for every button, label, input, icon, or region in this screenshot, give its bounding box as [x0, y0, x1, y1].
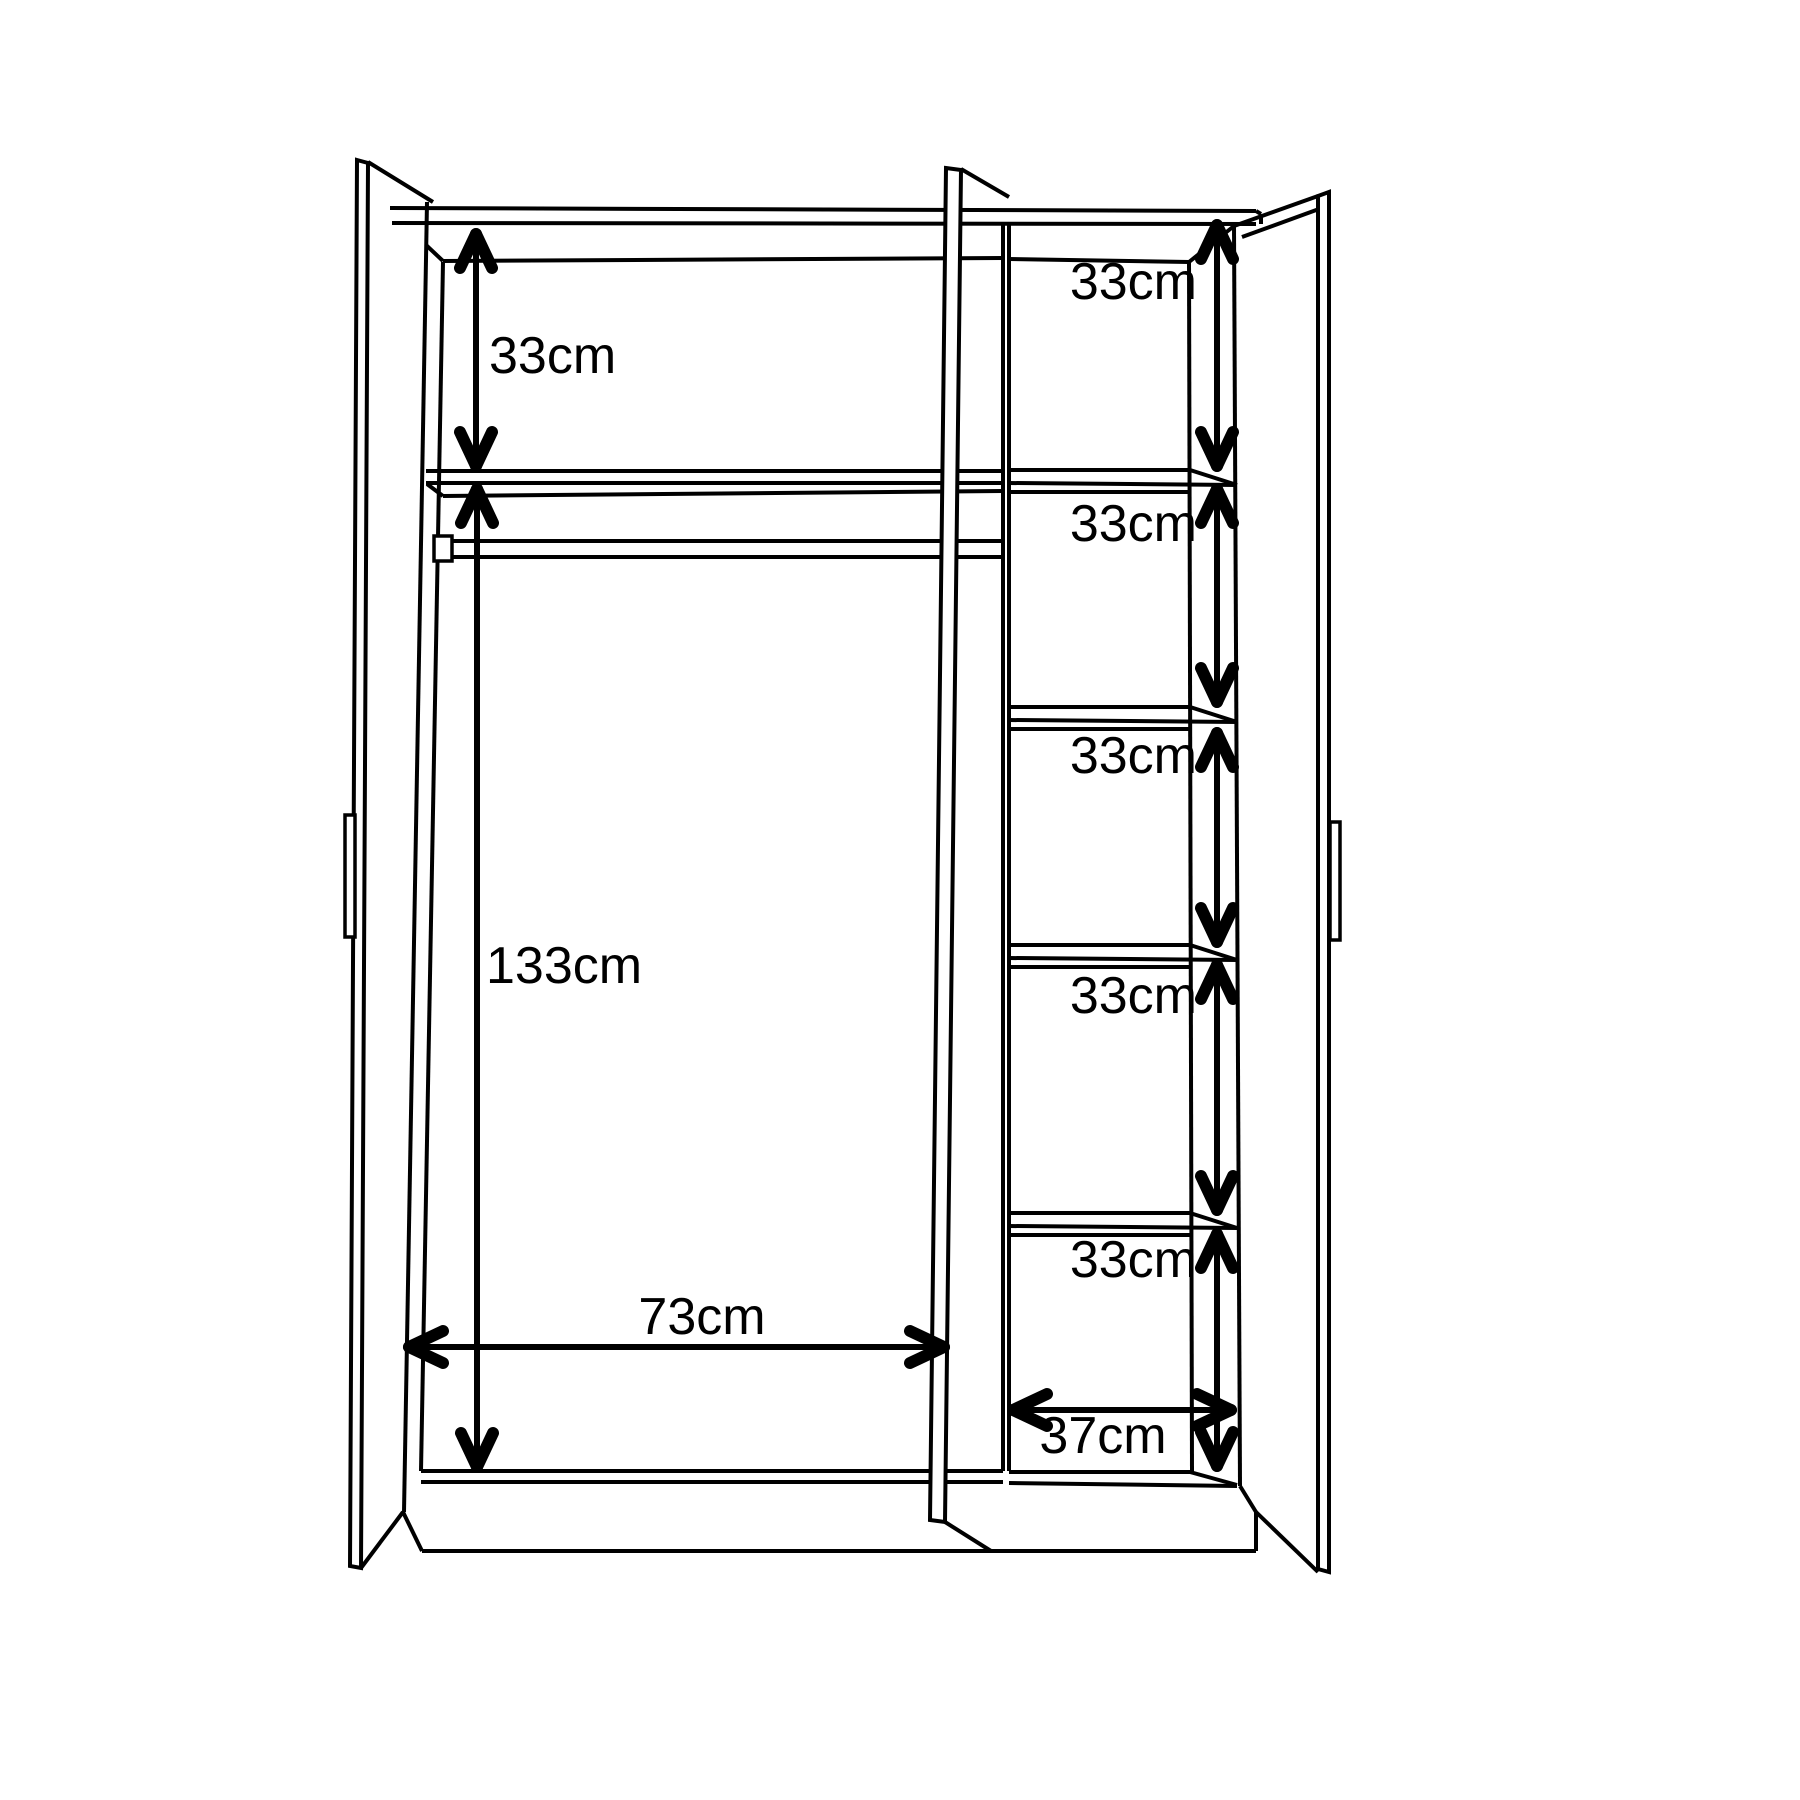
dim-label-right-space-4: 33cm	[1070, 967, 1197, 1025]
left-door-handle	[345, 815, 355, 937]
dimension-annotations: 33cm133cm73cm33cm33cm33cm33cm33cm37cm	[409, 225, 1233, 1467]
dim-label-right-space-1: 33cm	[1070, 253, 1197, 311]
dimension-arrow-left-width: 73cm	[409, 1288, 944, 1363]
dimension-arrow-right-space-4: 33cm	[1070, 965, 1233, 1210]
right-door-handle	[1330, 822, 1340, 940]
dimension-arrow-right-space-2: 33cm	[1070, 489, 1233, 702]
dimension-arrow-left-top-compartment: 33cm	[460, 234, 616, 466]
dimension-arrow-right-space-3: 33cm	[1070, 727, 1233, 942]
dim-label-left-hanging-height: 133cm	[486, 937, 642, 995]
wardrobe-dimension-diagram: 33cm133cm73cm33cm33cm33cm33cm33cm37cm	[0, 0, 1800, 1800]
dim-label-right-space-2: 33cm	[1070, 495, 1197, 553]
wardrobe-drawing: 33cm133cm73cm33cm33cm33cm33cm33cm37cm	[0, 0, 1800, 1800]
right-door	[1318, 192, 1329, 1572]
dim-label-right-space-5: 33cm	[1070, 1231, 1197, 1289]
dimension-arrow-left-hanging-height: 133cm	[461, 489, 642, 1467]
dim-label-left-top-compartment: 33cm	[489, 327, 616, 385]
dimension-arrow-right-space-1: 33cm	[1070, 225, 1233, 466]
dim-label-left-width: 73cm	[638, 1288, 765, 1346]
dim-label-right-width: 37cm	[1039, 1407, 1166, 1465]
middle-door	[930, 168, 961, 1522]
hanging-rail-end-cap	[434, 536, 452, 561]
dim-label-right-space-3: 33cm	[1070, 727, 1197, 785]
dimension-arrow-right-width: 37cm	[1013, 1394, 1231, 1465]
